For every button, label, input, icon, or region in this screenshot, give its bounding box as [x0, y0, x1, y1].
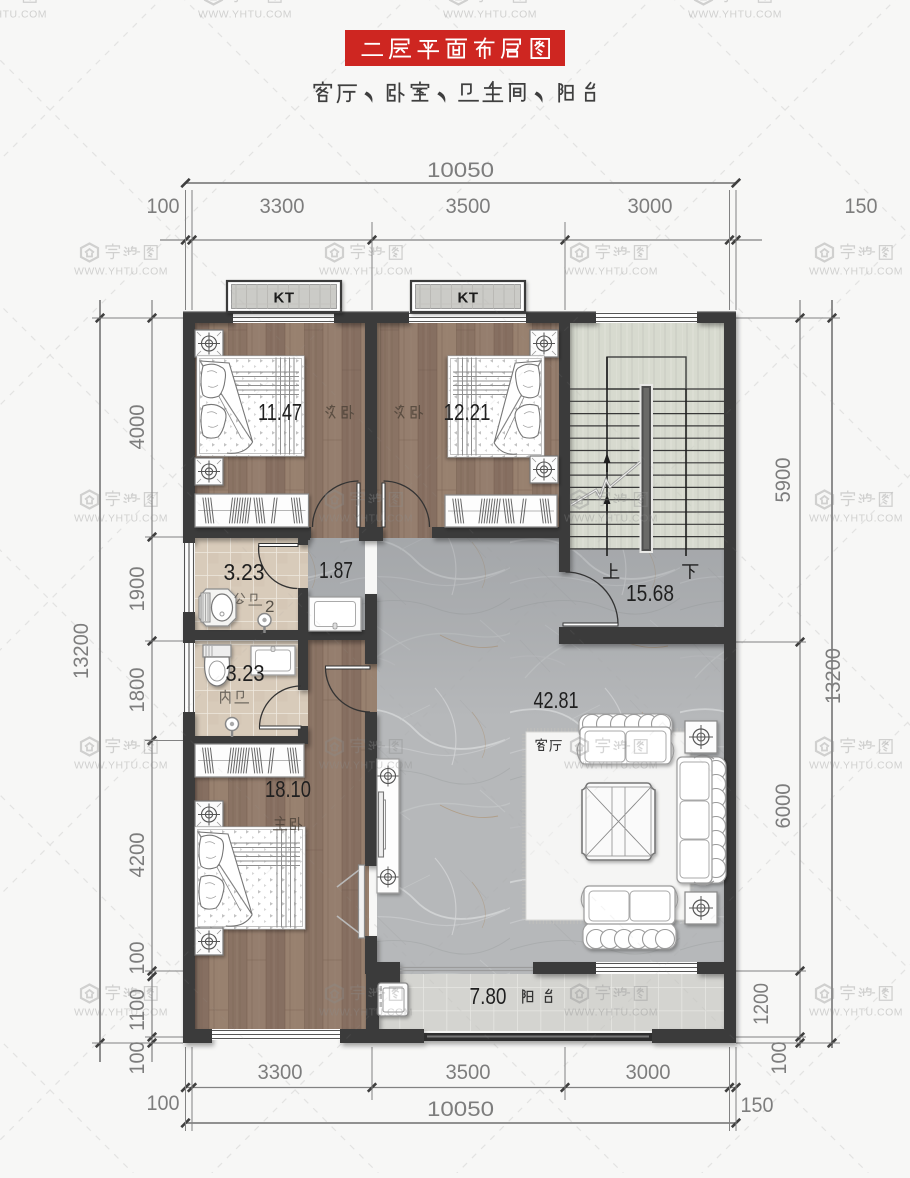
- svg-text:WWW.YHTU.COM: WWW.YHTU.COM: [564, 513, 658, 525]
- svg-text:WWW.YHTU.COM: WWW.YHTU.COM: [319, 266, 413, 278]
- svg-text:100: 100: [125, 941, 149, 974]
- svg-text:2: 2: [265, 597, 274, 616]
- svg-text:13200: 13200: [821, 648, 845, 704]
- svg-text:WWW.YHTU.COM: WWW.YHTU.COM: [443, 9, 537, 21]
- svg-text:10050: 10050: [427, 1097, 494, 1121]
- svg-text:100: 100: [147, 1091, 180, 1115]
- svg-text:WWW.YHTU.COM: WWW.YHTU.COM: [74, 513, 168, 525]
- svg-text:WWW.YHTU.COM: WWW.YHTU.COM: [0, 9, 47, 21]
- svg-text:15.68: 15.68: [626, 580, 674, 606]
- svg-text:KT: KT: [274, 290, 295, 307]
- svg-text:1.87: 1.87: [319, 557, 353, 583]
- svg-text:150: 150: [741, 1093, 774, 1117]
- svg-text:10050: 10050: [427, 158, 494, 182]
- svg-text:3000: 3000: [626, 1060, 671, 1084]
- svg-text:6000: 6000: [771, 783, 795, 828]
- svg-text:3500: 3500: [446, 194, 491, 218]
- svg-text:1200: 1200: [749, 983, 773, 1025]
- svg-text:WWW.YHTU.COM: WWW.YHTU.COM: [809, 760, 903, 772]
- svg-text:3.23: 3.23: [226, 660, 265, 686]
- svg-text:WWW.YHTU.COM: WWW.YHTU.COM: [74, 1007, 168, 1019]
- svg-text:WWW.YHTU.COM: WWW.YHTU.COM: [198, 9, 292, 21]
- svg-text:5900: 5900: [771, 457, 795, 502]
- svg-text:WWW.YHTU.COM: WWW.YHTU.COM: [809, 513, 903, 525]
- svg-text:WWW.YHTU.COM: WWW.YHTU.COM: [809, 1007, 903, 1019]
- svg-text:WWW.YHTU.COM: WWW.YHTU.COM: [564, 266, 658, 278]
- svg-text:WWW.YHTU.COM: WWW.YHTU.COM: [74, 266, 168, 278]
- svg-text:WWW.YHTU.COM: WWW.YHTU.COM: [319, 760, 413, 772]
- svg-text:150: 150: [845, 194, 878, 218]
- svg-text:4000: 4000: [125, 404, 149, 449]
- svg-text:3000: 3000: [628, 194, 673, 218]
- svg-text:3.23: 3.23: [224, 559, 265, 585]
- svg-text:100: 100: [767, 1041, 791, 1074]
- svg-text:100: 100: [125, 1041, 149, 1074]
- svg-text:WWW.YHTU.COM: WWW.YHTU.COM: [564, 760, 658, 772]
- svg-text:11.47: 11.47: [258, 399, 302, 425]
- svg-text:3500: 3500: [446, 1060, 491, 1084]
- svg-text:KT: KT: [458, 290, 479, 307]
- svg-text:42.81: 42.81: [534, 687, 579, 713]
- svg-text:WWW.YHTU.COM: WWW.YHTU.COM: [688, 9, 782, 21]
- svg-text:100: 100: [147, 194, 180, 218]
- svg-text:3300: 3300: [258, 1060, 303, 1084]
- svg-text:4200: 4200: [125, 832, 149, 877]
- svg-text:1800: 1800: [125, 667, 149, 712]
- svg-text:18.10: 18.10: [265, 776, 311, 802]
- svg-text:WWW.YHTU.COM: WWW.YHTU.COM: [809, 266, 903, 278]
- svg-text:WWW.YHTU.COM: WWW.YHTU.COM: [564, 1007, 658, 1019]
- svg-text:WWW.YHTU.COM: WWW.YHTU.COM: [319, 513, 413, 525]
- svg-text:3300: 3300: [260, 194, 305, 218]
- svg-text:WWW.YHTU.COM: WWW.YHTU.COM: [74, 760, 168, 772]
- svg-text:WWW.YHTU.COM: WWW.YHTU.COM: [319, 1007, 413, 1019]
- svg-text:1900: 1900: [125, 566, 149, 611]
- svg-text:7.80: 7.80: [470, 983, 507, 1009]
